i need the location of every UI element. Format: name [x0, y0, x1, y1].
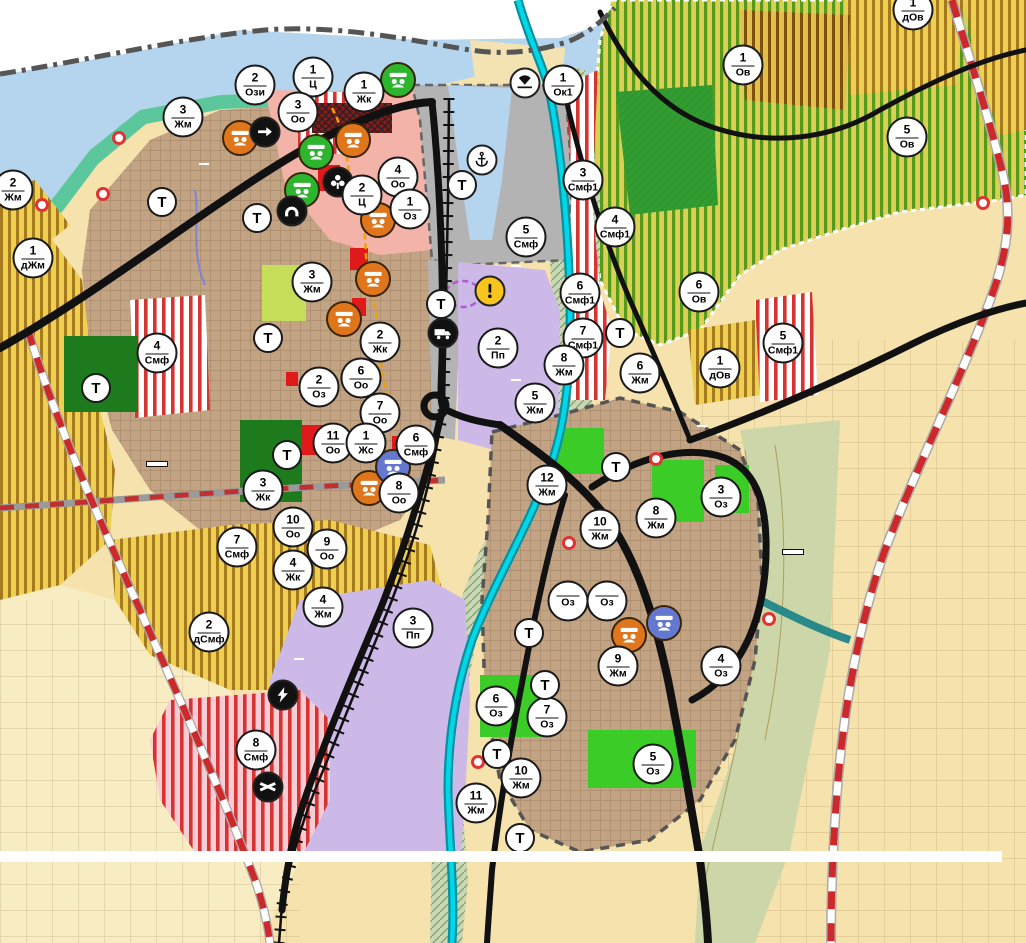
zone-number: 5: [532, 390, 539, 402]
zone-code: Смф: [514, 240, 538, 251]
zone-code: Пп: [406, 631, 420, 642]
zone-number: 2: [206, 619, 213, 631]
zone-code: Ози: [245, 88, 265, 99]
zone-code: Жм: [538, 488, 555, 499]
street-label: [697, 425, 707, 427]
zone-number: 6: [413, 432, 420, 444]
zone-number: 1: [407, 196, 414, 208]
zone-code: Жк: [373, 345, 388, 356]
heritage-icon: [355, 261, 391, 297]
land-register-box: [146, 461, 168, 467]
zone-marker: 2 дСмф: [189, 612, 230, 653]
heritage-icon: [380, 62, 416, 98]
zone-code: дСмф: [193, 635, 224, 646]
zone-code: Т: [282, 448, 291, 463]
zone-code: Оз: [714, 500, 727, 511]
zone-number: 4: [612, 214, 619, 226]
zone-number: 3: [410, 615, 417, 627]
zone-marker: 5 Смф1: [763, 323, 804, 364]
red-dot-marker: [112, 131, 126, 145]
zone-code: Смф: [404, 448, 428, 459]
zone-number: 1: [717, 355, 724, 367]
zone-number: 3: [580, 167, 587, 179]
warning-icon: [475, 276, 506, 307]
red-dot-marker: [762, 612, 776, 626]
zone-number: 4: [718, 653, 725, 665]
zone-marker: 8 Жм: [544, 345, 585, 386]
red-dot-marker: [35, 198, 49, 212]
zone-marker: 2 Оз: [299, 367, 340, 408]
legend-note: [0, 851, 1002, 862]
zone-marker: 6 Оз: [476, 686, 517, 727]
red-dot-marker: [976, 196, 990, 210]
zone-marker: 8 Смф: [236, 730, 277, 771]
zone-number: 8: [653, 505, 660, 517]
zone-marker: 6 Смф1: [560, 273, 601, 314]
zone-marker: 3 Смф1: [563, 160, 604, 201]
zone-marker: 8 Оо: [379, 473, 420, 514]
zone-marker: 4 Смф1: [595, 207, 636, 248]
zone-number: 7: [234, 534, 241, 546]
zone-number: 2: [377, 329, 384, 341]
zone-marker: Т: [81, 373, 111, 403]
zone-code: Жм: [609, 669, 626, 680]
anchor-icon: [467, 145, 498, 176]
zone-code: Смф: [225, 550, 249, 561]
zone-code: Т: [524, 626, 533, 641]
zone-number: 10: [593, 516, 606, 528]
zone-marker: 7 Смф: [217, 527, 258, 568]
zone-marker: 9 Жм: [598, 646, 639, 687]
power-icon: [268, 680, 299, 711]
zone-number: 1: [363, 430, 370, 442]
zone-number: 6: [577, 280, 584, 292]
zone-code: Оз: [561, 598, 574, 609]
zone-code: Жк: [357, 95, 372, 106]
zone-code: Жм: [555, 368, 572, 379]
zone-number: 5: [523, 224, 530, 236]
zone-number: 10: [514, 765, 527, 777]
zone-marker: Т: [530, 670, 560, 700]
zone-code: Т: [457, 178, 466, 193]
zone-code: Смф1: [768, 346, 798, 357]
zone-code: Смф: [145, 356, 169, 367]
zone-number: 8: [561, 352, 568, 364]
zone-number: 3: [260, 477, 267, 489]
zone-code: Жм: [526, 406, 543, 417]
zone-code: Ц: [358, 198, 366, 209]
zone-code: Оо: [291, 115, 306, 126]
heritage-icon: [298, 134, 334, 170]
zone-code: дЖм: [21, 261, 45, 272]
zone-marker: Т: [272, 440, 302, 470]
zone-number: 5: [780, 330, 787, 342]
zone-code: Ов: [736, 68, 751, 79]
zone-marker: Т: [514, 618, 544, 648]
zone-code: Пп: [491, 351, 505, 362]
zone-number: 3: [718, 484, 725, 496]
zone-code: Оз: [312, 390, 325, 401]
zone-code: Т: [615, 326, 624, 341]
zone-marker: 1 Ов: [723, 45, 764, 86]
zone-code: Т: [91, 381, 100, 396]
zone-marker: 4 Жм: [303, 587, 344, 628]
zone-code: Ов: [692, 295, 707, 306]
zone-code: Т: [540, 678, 549, 693]
zone-number: 7: [377, 400, 384, 412]
zone-number: 1: [910, 0, 917, 9]
zone-code: Жм: [591, 532, 608, 543]
zone-code: Ц: [309, 80, 317, 91]
zone-marker: Оз: [548, 581, 589, 622]
zone-marker: 3 Жм: [163, 97, 204, 138]
zone-code: Жс: [358, 446, 373, 457]
zone-code: Оо: [392, 496, 407, 507]
one-way-icon: [250, 117, 281, 148]
zone-marker: 2 Жк: [360, 322, 401, 363]
zone-marker: 8 Жм: [636, 498, 677, 539]
zone-number: 4: [320, 594, 327, 606]
base-map: [0, 0, 1026, 943]
zone-number: 1: [310, 64, 317, 76]
zone-code: Смф1: [565, 296, 595, 307]
zone-marker: 3 Оз: [701, 477, 742, 518]
zone-code: Жм: [647, 521, 664, 532]
zone-marker: 1 Жк: [344, 72, 385, 113]
zone-marker: Т: [601, 452, 631, 482]
zone-marker: 2 Ц: [342, 175, 383, 216]
zone-number: 9: [324, 536, 331, 548]
zone-marker: Т: [253, 323, 283, 353]
zone-number: 3: [180, 104, 187, 116]
zone-marker: 3 Жм: [292, 262, 333, 303]
zone-number: 12: [540, 472, 553, 484]
red-dot-marker: [649, 452, 663, 466]
zone-marker: Т: [242, 203, 272, 233]
zone-code: Оо: [286, 530, 301, 541]
zone-code: дОв: [709, 371, 730, 382]
zone-number: 1: [361, 79, 368, 91]
zone-number: 7: [580, 325, 587, 337]
zone-code: Т: [263, 331, 272, 346]
zone-marker: 1 дЖм: [13, 238, 54, 279]
zone-marker: 1 Оз: [390, 189, 431, 230]
zone-number: 4: [395, 164, 402, 176]
zone-number: 5: [904, 124, 911, 136]
land-register-box: [782, 549, 804, 555]
zone-marker: 6 Смф: [396, 425, 437, 466]
zone-number: 6: [637, 360, 644, 372]
zone-number: 1: [740, 52, 747, 64]
zone-marker: Т: [447, 170, 477, 200]
heritage-icon: [335, 122, 371, 158]
zone-number: 2: [10, 177, 17, 189]
zone-number: 2: [316, 374, 323, 386]
zone-marker: 4 Жк: [273, 550, 314, 591]
zone-code: Оз: [540, 720, 553, 731]
zone-marker: Т: [505, 823, 535, 853]
zone-number: 2: [252, 72, 259, 84]
zone-marker: Т: [426, 289, 456, 319]
zone-number: 2: [359, 182, 366, 194]
zone-code: Оз: [646, 767, 659, 778]
zone-number: 9: [615, 653, 622, 665]
zone-marker: 6 Жм: [620, 353, 661, 394]
zone-code: Т: [515, 831, 524, 846]
street-label: [199, 163, 209, 165]
zone-number: 2: [495, 335, 502, 347]
red-dot-marker: [96, 187, 110, 201]
street-label: [294, 658, 304, 660]
zone-number: 6: [358, 365, 365, 377]
heritage-icon: [646, 605, 682, 641]
zone-code: Ов: [900, 140, 915, 151]
zone-number: 8: [253, 737, 260, 749]
zone-marker: 6 Ов: [679, 272, 720, 313]
zone-marker: Т: [605, 318, 635, 348]
zone-number: 6: [493, 693, 500, 705]
beach-icon: [510, 68, 541, 99]
zone-code: Жм: [4, 193, 21, 204]
zone-number: 11: [327, 430, 340, 442]
zone-marker: 5 Ов: [887, 117, 928, 158]
zone-code: Т: [492, 747, 501, 762]
red-dot-marker: [562, 536, 576, 550]
zone-code: Оз: [403, 212, 416, 223]
zone-marker: 3 Пп: [393, 608, 434, 649]
zone-marker: 5 Оз: [633, 744, 674, 785]
zone-marker: 1 Ок1: [543, 65, 584, 106]
zone-code: Оо: [320, 552, 335, 563]
truck-icon: [428, 318, 459, 349]
zone-code: Жм: [174, 120, 191, 131]
zone-code: Т: [611, 460, 620, 475]
zone-number: 3: [295, 99, 302, 111]
zone-code: Т: [252, 211, 261, 226]
zone-code: Жм: [631, 376, 648, 387]
zone-code: Жм: [303, 285, 320, 296]
zone-code: Смф1: [568, 183, 598, 194]
railway-crossing-icon: [253, 772, 284, 803]
zoning-map-canvas: 2 Ози 1 Ц 1 Жк 3 Оо 3 Жм 2: [0, 0, 1026, 943]
zone-code: Оо: [326, 446, 341, 457]
zone-marker: 12 Жм: [527, 465, 568, 506]
zone-number: 5: [650, 751, 657, 763]
street-label: [511, 379, 521, 381]
zone-code: Смф: [244, 753, 268, 764]
zone-code: Жм: [314, 610, 331, 621]
zone-number: 1: [560, 72, 567, 84]
zone-number: 1: [30, 245, 37, 257]
zone-code: Ок1: [553, 88, 572, 99]
zone-marker: 11 Жм: [456, 783, 497, 824]
zone-marker: 10 Жм: [580, 509, 621, 550]
zone-code: Оо: [354, 381, 369, 392]
zone-code: Жк: [286, 573, 301, 584]
zone-number: 7: [544, 704, 551, 716]
zone-marker: 7 Оз: [527, 697, 568, 738]
zone-marker: 1 дОв: [700, 348, 741, 389]
tunnel-icon: [277, 196, 308, 227]
zone-number: 4: [290, 557, 297, 569]
zone-code: Оз: [489, 709, 502, 720]
zone-number: 3: [309, 269, 316, 281]
zone-code: Жм: [467, 806, 484, 817]
zone-number: 6: [696, 279, 703, 291]
zone-number: 11: [470, 790, 483, 802]
zone-marker: Т: [482, 739, 512, 769]
zone-marker: 3 Жк: [243, 470, 284, 511]
zone-marker: 4 Оз: [701, 646, 742, 687]
zone-number: 4: [154, 340, 161, 352]
zone-code: Оз: [600, 598, 613, 609]
street-label: [511, 265, 521, 267]
zone-code: Т: [157, 195, 166, 210]
zone-code: дОв: [902, 13, 923, 24]
zone-number: 8: [396, 480, 403, 492]
zone-code: Жм: [512, 781, 529, 792]
zone-marker: 5 Смф: [506, 217, 547, 258]
zone-marker: 3 Оо: [278, 92, 319, 133]
zone-number: 10: [286, 514, 299, 526]
zone-code: Смф1: [600, 230, 630, 241]
street-label: [599, 586, 609, 588]
zone-marker: 5 Жм: [515, 383, 556, 424]
zone-marker: 4 Смф: [137, 333, 178, 374]
zone-marker: 2 Ози: [235, 65, 276, 106]
zone-code: Оз: [714, 669, 727, 680]
zone-marker: 2 Пп: [478, 328, 519, 369]
zone-marker: 1 Жс: [346, 423, 387, 464]
heritage-icon: [326, 301, 362, 337]
zone-code: Жк: [256, 493, 271, 504]
zone-marker: Т: [147, 187, 177, 217]
zone-code: Т: [436, 297, 445, 312]
